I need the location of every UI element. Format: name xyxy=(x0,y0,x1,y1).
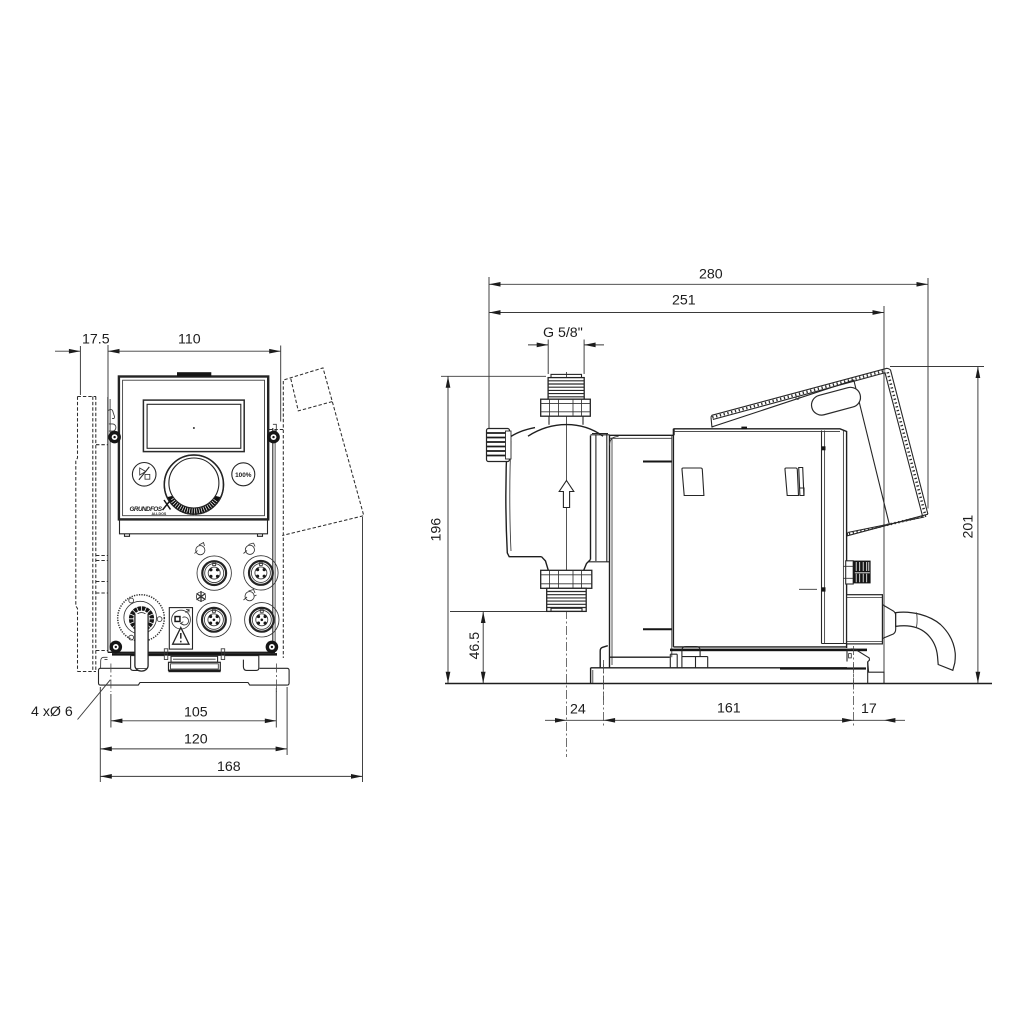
svg-text:ALLDOS: ALLDOS xyxy=(152,512,167,516)
svg-text:251: 251 xyxy=(672,293,696,309)
svg-text:280: 280 xyxy=(699,267,723,283)
svg-text:196: 196 xyxy=(429,518,445,542)
svg-text:4 xØ 6: 4 xØ 6 xyxy=(31,704,73,720)
svg-text:17.5: 17.5 xyxy=(82,332,110,348)
svg-text:120: 120 xyxy=(184,732,208,748)
svg-text:46.5: 46.5 xyxy=(467,632,483,660)
svg-text:201: 201 xyxy=(961,515,977,539)
svg-text:G 5/8": G 5/8" xyxy=(543,325,583,341)
svg-text:17: 17 xyxy=(861,701,877,717)
svg-text:105: 105 xyxy=(184,705,208,721)
svg-text:24: 24 xyxy=(570,702,586,718)
svg-text:110: 110 xyxy=(178,332,201,348)
svg-text:161: 161 xyxy=(717,701,741,717)
svg-text:100%: 100% xyxy=(235,472,252,479)
svg-text:168: 168 xyxy=(217,759,241,775)
